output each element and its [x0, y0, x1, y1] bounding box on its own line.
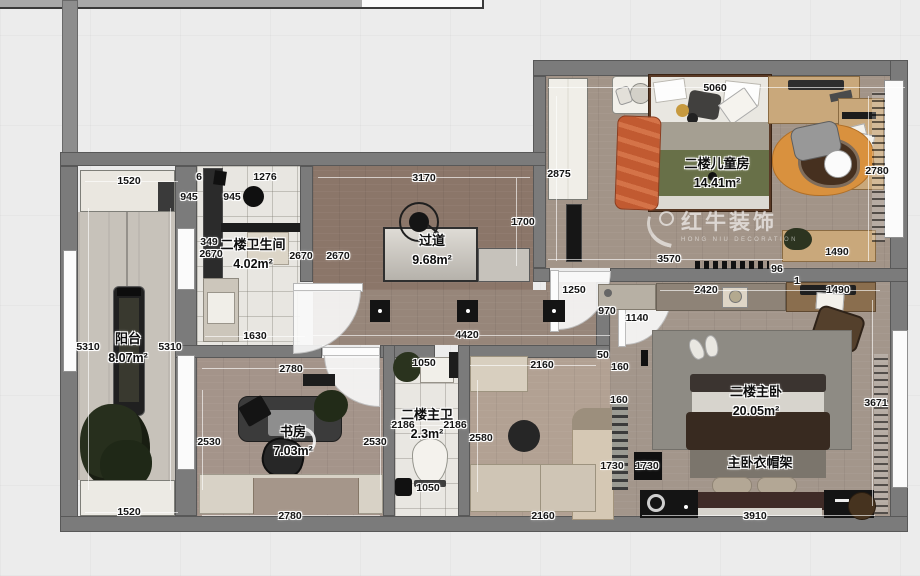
dimension-label: 1700	[511, 216, 534, 228]
dimension-label: 2530	[363, 436, 386, 448]
study-balcony-window	[177, 355, 195, 470]
dimension-label: 2670	[199, 248, 222, 260]
dressing-cabinet	[470, 356, 528, 392]
red-blanket	[614, 115, 661, 210]
wall-bottom	[60, 516, 908, 532]
neighbor-white-strip	[362, 0, 484, 9]
dimension-label: 1490	[826, 284, 849, 296]
mb-curtain	[874, 354, 888, 514]
dimension-label: 4420	[455, 329, 478, 341]
dimension-label: 3671	[864, 397, 887, 409]
floorplan-canvas[interactable]: 二楼儿童房14.41m²过道9.68m²二楼卫生间4.02m²阳台8.07m²书…	[0, 0, 920, 576]
room-label: 阳台8.07m²	[108, 329, 148, 369]
room-label: 过道9.68m²	[412, 231, 452, 271]
room-label: 书房7.03m²	[273, 422, 313, 462]
dimension-label: 2580	[469, 432, 492, 444]
dimension-label: 2186	[391, 419, 414, 431]
dimension-label: 1520	[117, 506, 140, 518]
balcony-west-window	[63, 250, 77, 372]
mb-wardrobe-hatch	[612, 396, 628, 490]
dimension-label: 160	[611, 361, 629, 373]
dimension-label: 3570	[657, 253, 680, 265]
dressing-bottom-cabinet	[470, 464, 596, 512]
sliding-door-track	[695, 261, 769, 269]
room-label: 二楼儿童房14.41m²	[684, 154, 749, 194]
dimension-label: 1250	[562, 284, 585, 296]
master-bedroom-window	[892, 330, 908, 488]
dimension-label: 1520	[117, 175, 140, 187]
round-sink	[243, 186, 264, 207]
dimension-label: 1276	[253, 171, 276, 183]
dimension-label: 2670	[289, 250, 312, 262]
room-label: 二楼主卧20.05m²	[730, 382, 782, 422]
dimension-label: 1050	[416, 482, 439, 494]
dimension-label: 2780	[865, 165, 888, 177]
dimension-label: 1050	[412, 357, 435, 369]
dimension-label: 1730	[635, 460, 658, 472]
room-label: 主卧衣帽架	[727, 453, 792, 473]
dimension-label: 1730	[600, 460, 623, 472]
dimension-label: 2780	[279, 363, 302, 375]
dimension-label: 3910	[743, 510, 766, 522]
dimension-label: 2160	[530, 359, 553, 371]
dimension-label: 5060	[703, 82, 726, 94]
wall-kids-left	[533, 76, 546, 268]
dimension-label: 5310	[158, 341, 181, 353]
dimension-label: 349	[200, 236, 218, 248]
dimension-label: 50	[597, 349, 609, 361]
dimension-label: 945	[223, 191, 241, 203]
bathroom-balcony-window	[177, 228, 195, 290]
dimension-label: 5310	[76, 341, 99, 353]
neighbor-wall-strip	[0, 0, 362, 9]
dimension-label: 160	[610, 394, 628, 406]
dimension-label: 2875	[547, 168, 570, 180]
dimension-label: 96	[771, 263, 783, 275]
shelf-plant	[784, 228, 812, 250]
wall-corridor-top-a	[533, 268, 550, 282]
kids-room-window	[884, 80, 904, 238]
dimension-label: 1	[794, 275, 800, 287]
dimension-label: 2780	[278, 510, 301, 522]
tall-mirror	[566, 204, 582, 262]
round-side-table	[824, 150, 852, 178]
dimension-label: 2420	[694, 284, 717, 296]
dimension-label: 1630	[243, 330, 266, 342]
room-label: 二楼卫生间4.02m²	[220, 235, 285, 275]
wall-main-top	[60, 152, 546, 166]
dimension-label: 2530	[197, 436, 220, 448]
wall-bath-hall-divider	[300, 166, 313, 282]
dimension-label: 1490	[825, 246, 848, 258]
dimension-label: 3170	[412, 172, 435, 184]
mb-counter	[656, 283, 786, 311]
dimension-label: 945	[180, 191, 198, 203]
dimension-label: 2186	[443, 419, 466, 431]
dimension-label: 970	[598, 305, 616, 317]
dimension-label: 6	[196, 171, 202, 183]
dimension-label: 2670	[326, 250, 349, 262]
dimension-label: 2160	[531, 510, 554, 522]
neighbor-wall-vertical	[62, 0, 78, 154]
dimension-label: 1140	[626, 312, 649, 324]
wardrobe	[548, 78, 588, 200]
dressing-stool	[508, 420, 540, 452]
wall-corridor-top-b	[610, 268, 908, 282]
